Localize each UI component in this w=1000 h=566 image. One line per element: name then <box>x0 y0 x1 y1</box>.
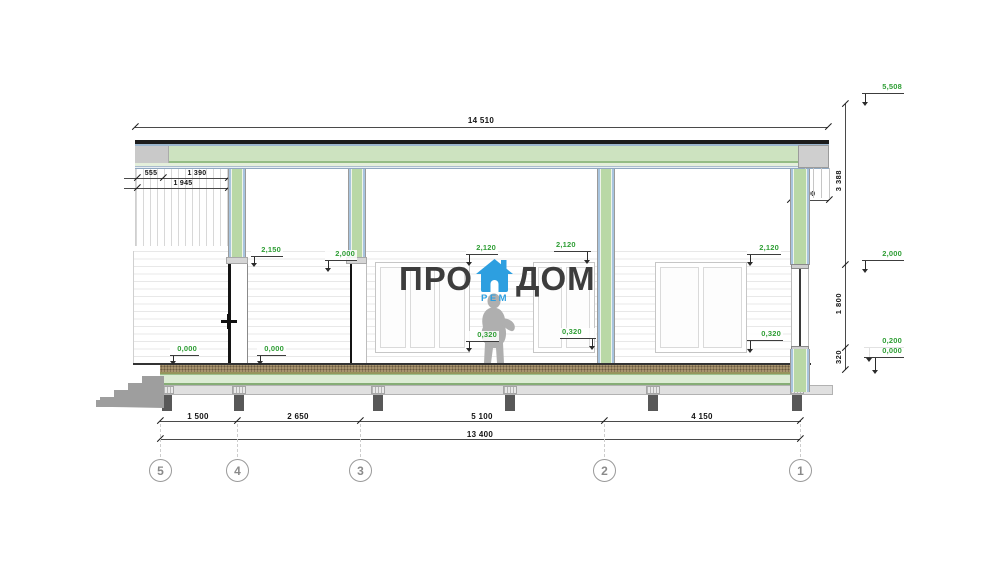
column-axis-4-cap <box>226 257 248 264</box>
grid-bubble-3: 3 <box>349 459 372 482</box>
grid-extension-line <box>800 424 801 457</box>
dim-line-top-total <box>135 127 828 128</box>
dim-line-right-chain <box>845 104 846 370</box>
column-axis-4 <box>228 169 246 263</box>
pile <box>373 394 383 411</box>
dim-bot-s4: 4 150 <box>691 412 713 421</box>
foundation-beam <box>160 385 833 395</box>
dim-right-lower: 320 <box>834 350 843 364</box>
house-icon <box>476 259 513 294</box>
window-pane <box>703 267 742 348</box>
down-arrow-icon <box>747 341 754 353</box>
pile <box>648 394 658 411</box>
down-arrow-icon <box>466 255 473 266</box>
dim-bot-total: 13 400 <box>467 430 493 439</box>
down-arrow-icon <box>251 257 258 267</box>
window-3 <box>655 262 747 353</box>
dim-bot-s3: 5 100 <box>471 412 493 421</box>
level-zero-right: 0,000 <box>864 347 904 358</box>
door-post-axis-4 <box>228 264 248 363</box>
grid-extension-line <box>160 424 161 457</box>
pile <box>234 394 244 411</box>
dim-line-eave-2 <box>124 188 228 189</box>
level-win2-top: 2,120 <box>554 241 591 252</box>
level-post-left: 2,150 <box>251 246 283 257</box>
roof-right-fascia <box>798 145 829 168</box>
dim-eave-total: 1 945 <box>173 180 192 187</box>
floor-joist-band <box>160 374 810 385</box>
roof-insulation-band <box>135 146 829 163</box>
pile-cap <box>371 386 385 394</box>
wall-axis-1-top <box>790 169 810 265</box>
column-axis-2 <box>597 169 615 363</box>
dim-bot-s1: 1 500 <box>187 412 209 421</box>
level-win3-top: 2,120 <box>747 244 781 255</box>
dim-right-upper: 3 388 <box>834 170 843 191</box>
down-arrow-icon <box>466 342 473 352</box>
grid-extension-line <box>604 424 605 457</box>
level-floor-b: 0,000 <box>257 345 286 356</box>
pile-cap <box>503 386 517 394</box>
level-floor-a: 0,000 <box>170 345 199 356</box>
post-axis-3 <box>350 264 367 363</box>
logo-word-right: ДОМ <box>516 262 596 295</box>
floor-insulation-layer <box>160 365 810 372</box>
pile <box>505 394 515 411</box>
level-win3-sill: 0,320 <box>747 330 783 341</box>
grid-bubble-5: 5 <box>149 459 172 482</box>
down-arrow-icon <box>872 358 879 374</box>
logo-word-left: ПРО <box>399 262 473 295</box>
dim-line-bottom-segments <box>160 421 801 422</box>
dim-top-total-label: 14 510 <box>468 116 494 125</box>
dim-line-eave-1 <box>124 178 228 179</box>
door-handle-icon <box>227 314 230 329</box>
level-wall-top-right: 2,000 <box>862 250 904 261</box>
roof-left-soffit <box>135 146 169 163</box>
down-arrow-icon <box>325 261 332 272</box>
dim-eave-seg1: 555 <box>145 170 158 177</box>
dim-right-mid: 1 800 <box>834 293 843 314</box>
dim-tick <box>842 366 849 373</box>
window-axis-1-glass <box>799 269 801 346</box>
wall-axis-1-bottom <box>790 349 810 392</box>
grid-extension-line <box>237 424 238 457</box>
level-win1-sill: 0,320 <box>466 331 499 342</box>
dim-bot-s2: 2 650 <box>287 412 309 421</box>
grid-bubble-2: 2 <box>593 459 616 482</box>
house-door <box>491 280 499 292</box>
dim-eave-seg2: 1 390 <box>187 170 206 177</box>
down-arrow-icon <box>170 356 177 365</box>
facade-section-drawing: ПРО ДОМ РЕМ 14 510 555 1 390 1 945 400 3… <box>0 0 1000 566</box>
level-win2-sill: 0,320 <box>560 328 596 339</box>
down-arrow-icon <box>862 94 869 106</box>
down-arrow-icon <box>257 356 264 365</box>
entrance-stairs <box>96 366 164 408</box>
level-win1-top: 2,120 <box>466 244 498 255</box>
pile <box>792 394 802 411</box>
down-arrow-icon <box>589 339 596 350</box>
level-ridge: 5,508 <box>862 83 904 94</box>
logo-sub-label: РЕМ <box>481 293 509 304</box>
down-arrow-icon <box>584 252 591 264</box>
level-post-mid: 2,000 <box>325 250 357 261</box>
down-arrow-icon <box>747 255 754 266</box>
pile-cap <box>646 386 660 394</box>
dim-line-bottom-total <box>160 439 801 440</box>
grid-bubble-4: 4 <box>226 459 249 482</box>
down-arrow-icon <box>862 261 869 273</box>
grid-bubble-1: 1 <box>789 459 812 482</box>
dim-tick <box>825 123 832 130</box>
grid-extension-line <box>360 424 361 457</box>
pile-cap <box>232 386 246 394</box>
window-pane <box>660 267 699 348</box>
